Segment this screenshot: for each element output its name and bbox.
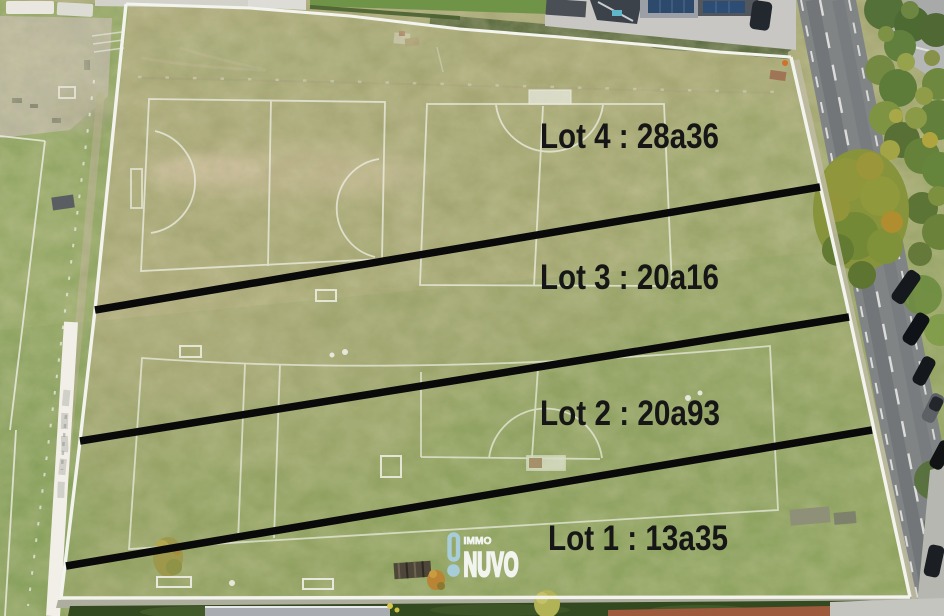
svg-text:Lot 1 : 13a35: Lot 1 : 13a35 <box>548 519 728 558</box>
svg-text:Lot 4 : 28a36: Lot 4 : 28a36 <box>540 117 719 156</box>
svg-text:Lot 2 : 20a93: Lot 2 : 20a93 <box>540 394 720 433</box>
svg-text:Lot 3 : 20a16: Lot 3 : 20a16 <box>540 258 719 297</box>
svg-text:NUVO: NUVO <box>464 546 519 584</box>
